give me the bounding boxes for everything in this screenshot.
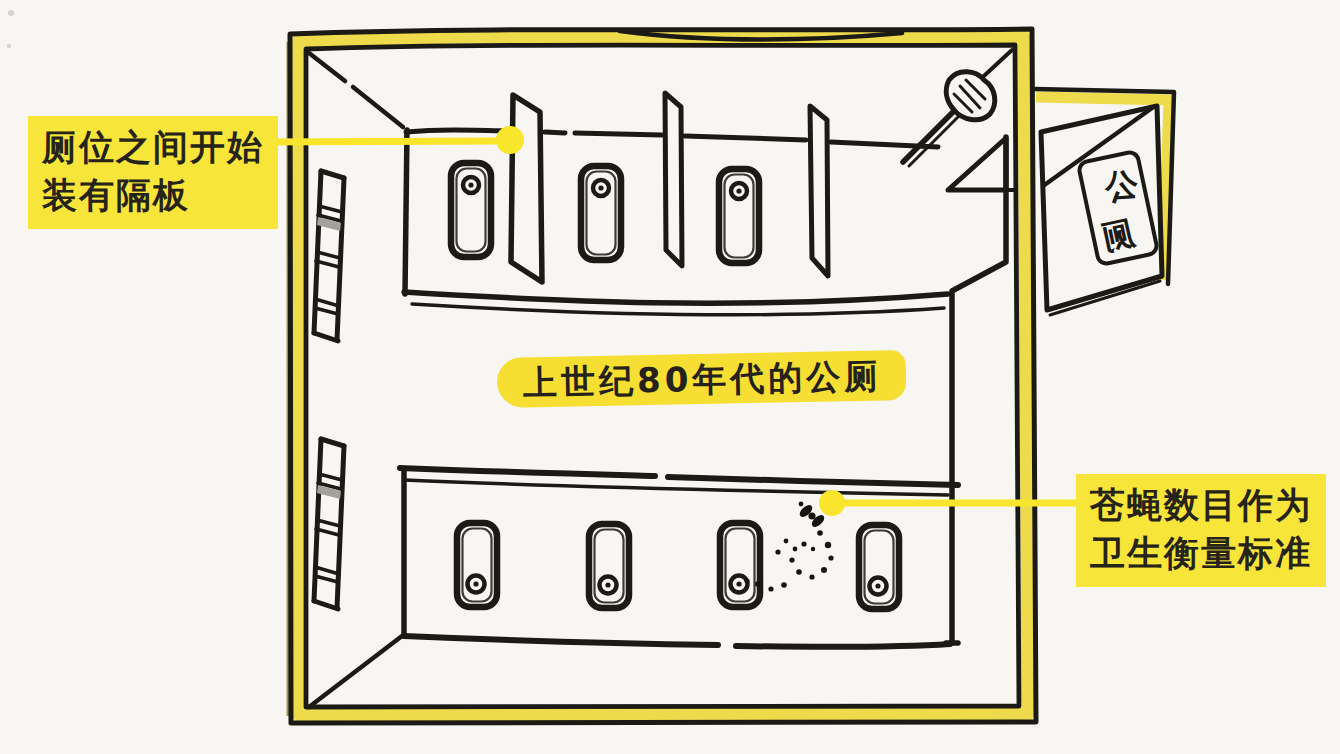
- illustration-stage: 公 厕 厕位之间开始 装有隔板 苍蝇数目作为 卫生衡量标准 上世纪80年代的公厕: [0, 0, 1340, 754]
- callout-partitions: 厕位之间开始 装有隔板: [28, 116, 278, 229]
- callout-partitions-line2: 装有隔板: [42, 171, 264, 219]
- callout-flies-line1: 苍蝇数目作为: [1090, 481, 1312, 529]
- scene-title: 上世纪80年代的公厕: [497, 350, 907, 408]
- squat-toilet: [451, 163, 491, 257]
- callout-flies: 苍蝇数目作为 卫生衡量标准: [1076, 474, 1326, 587]
- partition: [511, 95, 542, 282]
- squat-toilet: [859, 525, 899, 609]
- callout-flies-line2: 卫生衡量标准: [1090, 529, 1312, 577]
- partition: [665, 93, 682, 266]
- partition: [810, 106, 828, 276]
- squat-toilet: [581, 166, 621, 260]
- squat-toilet: [457, 523, 497, 607]
- squat-toilet: [719, 169, 759, 263]
- callout-partitions-line1: 厕位之间开始: [42, 123, 264, 171]
- squat-toilet: [589, 524, 629, 608]
- squat-toilet: [720, 523, 760, 607]
